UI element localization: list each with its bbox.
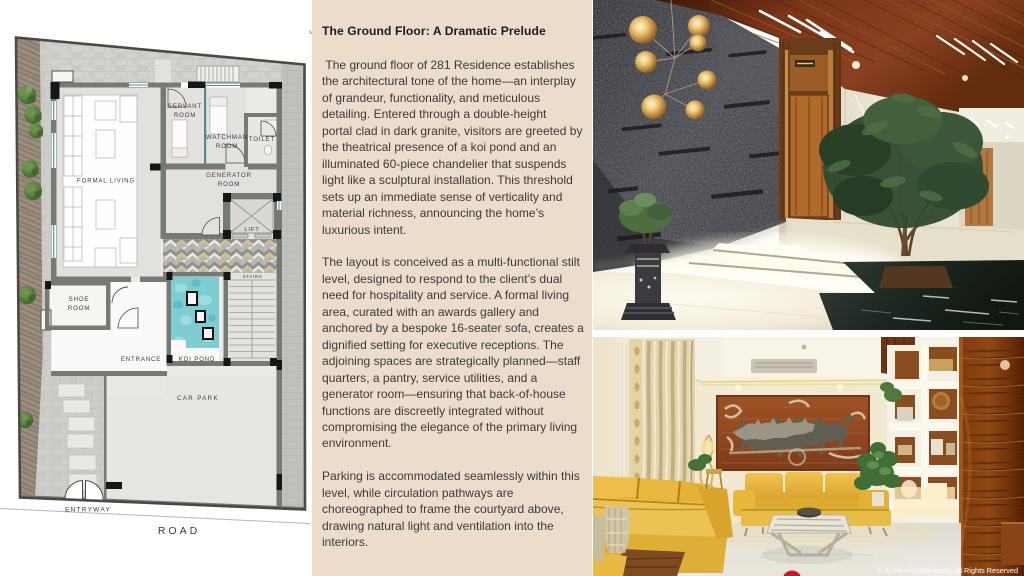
svg-text:ROOM: ROOM [174,112,196,119]
svg-text:ENTRYWAY: ENTRYWAY [65,507,111,514]
svg-text:TOILET: TOILET [249,136,275,143]
svg-text:FORMAL LIVING: FORMAL LIVING [77,178,135,185]
svg-text:ENTRANCE: ENTRANCE [121,356,161,363]
svg-text:STAIRS: STAIRS [243,274,263,279]
svg-text:SERVANT: SERVANT [168,103,202,110]
svg-text:LIFT: LIFT [244,227,259,233]
svg-text:SHOE: SHOE [69,296,90,303]
svg-text:© Archemist Architects, All Ri: © Archemist Architects, All Rights Reser… [877,566,1018,575]
svg-text:CAR PARK: CAR PARK [177,395,219,402]
svg-text:GENERATOR: GENERATOR [206,172,252,179]
svg-text:KOI POND: KOI POND [179,356,216,363]
svg-text:ROAD: ROAD [158,525,200,537]
svg-text:ROOM: ROOM [218,181,240,188]
svg-text:WATCHMAN: WATCHMAN [206,134,248,141]
svg-text:ROOM: ROOM [216,143,238,150]
svg-text:ROOM: ROOM [68,305,90,312]
